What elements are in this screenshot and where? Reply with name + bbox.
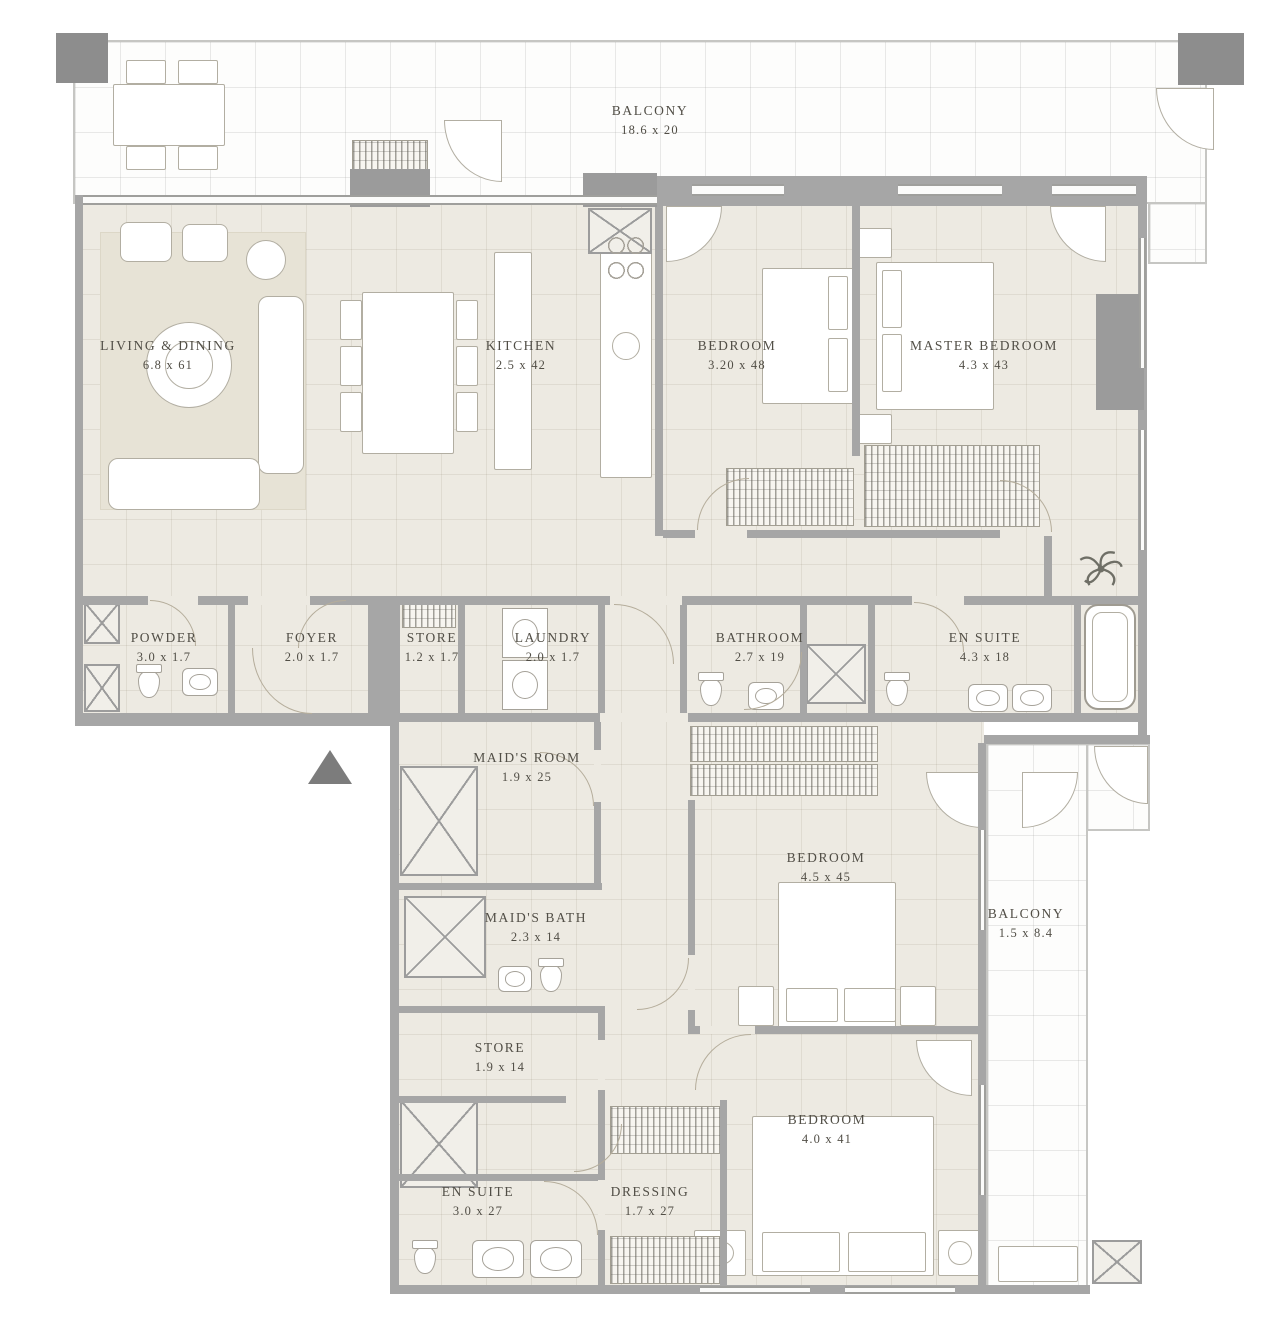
outdoor-table [113, 84, 225, 146]
room-label-bedroom-2: BEDROOM 4.5 x 45 [787, 850, 866, 885]
wall-segment [868, 600, 875, 713]
corner-block [56, 33, 108, 83]
room-label-dressing: DRESSING 1.7 x 27 [611, 1184, 690, 1219]
dining-chair [340, 392, 362, 432]
room-name: BEDROOM [787, 850, 866, 866]
wall-segment [747, 530, 1000, 538]
sink-fixture [472, 1240, 524, 1278]
sofa [258, 296, 304, 474]
pillow [882, 270, 902, 328]
door-gap [594, 750, 601, 802]
room-name: MASTER BEDROOM [910, 338, 1058, 354]
room-label-store-2: STORE 1.9 x 14 [475, 1040, 526, 1075]
outdoor-chair [178, 60, 218, 84]
dressing-wardrobe [610, 1106, 722, 1154]
room-dims: 4.3 x 18 [949, 650, 1021, 665]
room-dims: 2.5 x 42 [486, 358, 556, 373]
pillow [786, 988, 838, 1022]
pillow [882, 334, 902, 392]
closet [690, 764, 878, 796]
store-shelf [402, 604, 456, 628]
balcony-unit [998, 1246, 1078, 1282]
room-name: BALCONY [612, 103, 688, 119]
room-label-balcony-top: BALCONY 18.6 x 20 [612, 103, 688, 138]
room-label-kitchen: KITCHEN 2.5 x 42 [486, 338, 556, 373]
wall-segment [75, 195, 83, 725]
wall-segment [680, 600, 687, 713]
window [692, 184, 784, 196]
wall-segment [368, 600, 400, 713]
sink-fixture [182, 668, 218, 696]
room-name: MAID'S ROOM [473, 750, 580, 766]
stove-icon [602, 232, 650, 294]
room-dims: 4.3 x 43 [910, 358, 1058, 373]
room-dims: 1.2 x 1.7 [405, 650, 460, 665]
dining-chair [456, 346, 478, 386]
window [979, 1085, 986, 1195]
room-name: FOYER [285, 630, 340, 646]
dining-chair [456, 300, 478, 340]
wall-segment [852, 206, 860, 456]
room-dims: 1.5 x 8.4 [988, 926, 1064, 941]
room-name: EN SUITE [949, 630, 1021, 646]
dining-chair [456, 392, 478, 432]
room-dims: 2.3 x 14 [485, 930, 587, 945]
pillow [762, 1232, 840, 1272]
window [979, 830, 986, 930]
room-name: STORE [475, 1040, 526, 1056]
nightstand [858, 414, 892, 444]
room-name: LAUNDRY [515, 630, 591, 646]
sofa [108, 458, 260, 510]
armchair [182, 224, 228, 262]
dressing-wardrobe [610, 1236, 722, 1284]
elevator-shaft [400, 766, 478, 876]
closet [690, 726, 878, 762]
door-gap [700, 1026, 755, 1034]
room-label-en-suite-2: EN SUITE 3.0 x 27 [442, 1184, 514, 1219]
washer-fixture [502, 660, 548, 710]
wall-segment [396, 1096, 566, 1103]
nightstand [858, 228, 892, 258]
wall-segment [396, 1174, 603, 1181]
door-gap [598, 1180, 605, 1230]
room-name: KITCHEN [486, 338, 556, 354]
room-label-maids-room: MAID'S ROOM 1.9 x 25 [473, 750, 580, 785]
window [898, 184, 1002, 196]
kitchen-sink-icon [612, 332, 640, 360]
wall-segment [594, 719, 601, 885]
room-dims: 2.7 x 19 [716, 650, 805, 665]
room-label-store-1: STORE 1.2 x 1.7 [405, 630, 460, 665]
room-label-master-bedroom: MASTER BEDROOM 4.3 x 43 [910, 338, 1058, 373]
room-label-bathroom: BATHROOM 2.7 x 19 [716, 630, 805, 665]
sink-fixture [498, 966, 532, 992]
dining-chair [340, 346, 362, 386]
outdoor-chair [126, 146, 166, 170]
sink-fixture [530, 1240, 582, 1278]
glazing-top [83, 195, 657, 205]
room-label-laundry: LAUNDRY 2.0 x 1.7 [515, 630, 591, 665]
pillow [828, 338, 848, 392]
wall-segment [598, 600, 605, 713]
room-dims: 6.8 x 61 [100, 358, 236, 373]
room-dims: 4.5 x 45 [787, 870, 866, 885]
planter [352, 140, 428, 170]
sink-fixture [1012, 684, 1052, 712]
room-label-powder: POWDER 3.0 x 1.7 [131, 630, 198, 665]
outdoor-chair [178, 146, 218, 170]
door-gap [688, 955, 695, 1010]
room-label-balcony-side: BALCONY 1.5 x 8.4 [988, 906, 1064, 941]
room-label-bedroom-3: BEDROOM 4.0 x 41 [788, 1112, 867, 1147]
room-dims: 3.0 x 27 [442, 1204, 514, 1219]
room-name: BALCONY [988, 906, 1064, 922]
armchair [120, 222, 172, 262]
room-name: EN SUITE [442, 1184, 514, 1200]
balcony-top-right-ext [1148, 202, 1207, 264]
room-name: BEDROOM [788, 1112, 867, 1128]
shower-fixture [404, 896, 486, 978]
wall-segment [1074, 600, 1081, 713]
side-table [246, 240, 286, 280]
dining-chair [340, 300, 362, 340]
room-label-maids-bath: MAID'S BATH 2.3 x 14 [485, 910, 587, 945]
door-gap [600, 713, 688, 722]
room-dims: 3.20 x 48 [698, 358, 777, 373]
wall-segment [228, 600, 235, 713]
ac-unit [1092, 1240, 1142, 1284]
wall-segment [396, 883, 602, 890]
room-name: BEDROOM [698, 338, 777, 354]
window [700, 1286, 810, 1294]
window [1139, 430, 1146, 550]
room-name: MAID'S BATH [485, 910, 587, 926]
shaft [806, 644, 866, 704]
wall-segment [984, 735, 1150, 744]
shaft [84, 664, 120, 712]
room-name: STORE [405, 630, 460, 646]
room-name: DRESSING [611, 1184, 690, 1200]
shaft [84, 602, 120, 644]
corner-block [1178, 33, 1244, 85]
sink-fixture [968, 684, 1008, 712]
room-name: LIVING & DINING [100, 338, 236, 354]
room-dims: 2.0 x 1.7 [515, 650, 591, 665]
dining-table [362, 292, 454, 454]
built-in-block [1096, 294, 1144, 410]
wall-segment [663, 530, 695, 538]
room-dims: 18.6 x 20 [612, 123, 688, 138]
pillow [828, 276, 848, 330]
wall-segment [1044, 536, 1052, 600]
nightstand [738, 986, 774, 1026]
pillow [844, 988, 896, 1022]
window [845, 1286, 955, 1294]
room-label-foyer: FOYER 2.0 x 1.7 [285, 630, 340, 665]
room-dims: 1.7 x 27 [611, 1204, 690, 1219]
window [1052, 184, 1136, 196]
room-dims: 2.0 x 1.7 [285, 650, 340, 665]
door-gap [248, 596, 310, 605]
pillow [848, 1232, 926, 1272]
entrance-triangle-icon [308, 750, 352, 784]
room-label-living-dining: LIVING & DINING 6.8 x 61 [100, 338, 236, 373]
room-label-bedroom-1: BEDROOM 3.20 x 48 [698, 338, 777, 373]
wall-segment [396, 1006, 602, 1013]
room-dims: 3.0 x 1.7 [131, 650, 198, 665]
palm-tree-icon [1078, 546, 1124, 592]
room-name: POWDER [131, 630, 198, 646]
wall-segment [655, 206, 663, 536]
room-dims: 4.0 x 41 [788, 1132, 867, 1147]
room-name: BATHROOM [716, 630, 805, 646]
wall-segment [720, 1100, 727, 1286]
floor-plan-canvas: BALCONY 18.6 x 20 LIVING & DINING 6.8 x … [0, 0, 1280, 1324]
room-label-en-suite-1: EN SUITE 4.3 x 18 [949, 630, 1021, 665]
room-dims: 1.9 x 14 [475, 1060, 526, 1075]
nightstand [900, 986, 936, 1026]
room-dims: 1.9 x 25 [473, 770, 580, 785]
door-gap [598, 1040, 605, 1090]
bathtub-fixture [1084, 604, 1136, 710]
wall-segment [978, 743, 986, 1292]
outdoor-chair [126, 60, 166, 84]
window [1139, 238, 1146, 368]
nightstand [938, 1230, 982, 1276]
